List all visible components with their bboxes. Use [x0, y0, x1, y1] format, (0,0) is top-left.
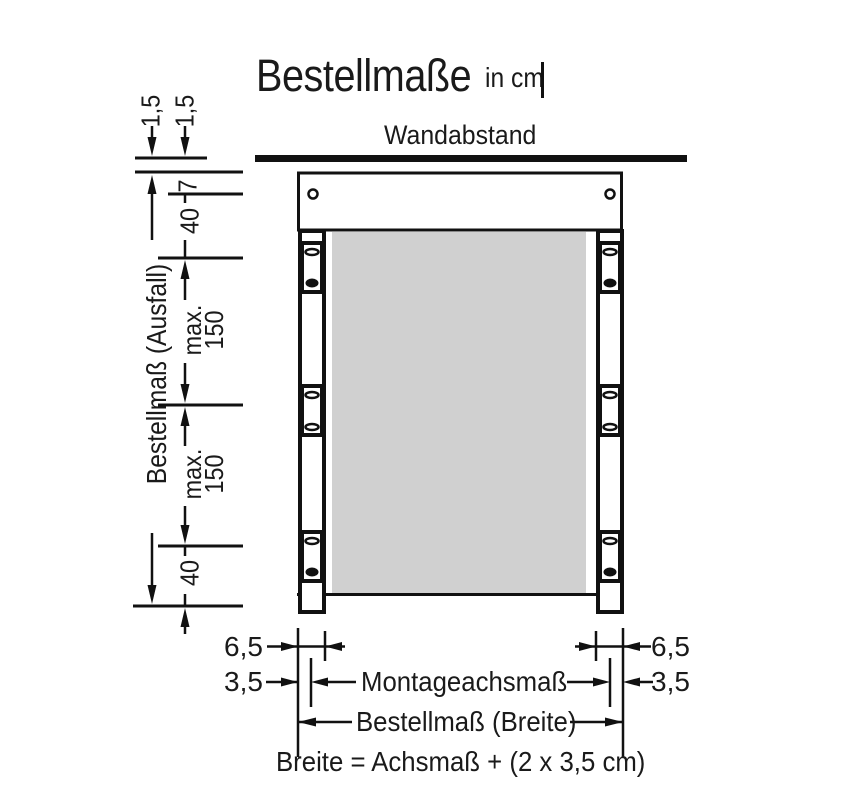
- screw-hole-right-icon: [606, 190, 615, 199]
- dim-1-5-left: 1,5: [136, 95, 167, 128]
- screw-icon: [306, 568, 319, 577]
- dim-6-5-left: 6,5: [224, 631, 263, 663]
- dim-max-150-upper: max. 150: [181, 305, 225, 356]
- dim-3-5-right: 3,5: [651, 666, 690, 698]
- dim-7: 7: [173, 179, 204, 192]
- slot-icon: [306, 538, 319, 544]
- drop-dimension-label: Bestellmaß (Ausfall): [141, 264, 173, 484]
- slot-icon: [604, 392, 617, 398]
- right-rail: [598, 231, 622, 612]
- wall-distance-label: Wandabstand: [384, 120, 536, 151]
- width-formula: Breite = Achsmaß + (2 x 3,5 cm): [276, 746, 645, 778]
- fabric-panel: [297, 232, 624, 595]
- dim-40-bottom: 40: [175, 560, 206, 586]
- dim-max-150-upper-line2: 150: [203, 305, 225, 356]
- left-rail: [300, 231, 324, 612]
- dim-max-150-lower-line2: 150: [203, 449, 225, 500]
- slot-icon: [306, 392, 319, 398]
- page-title: Bestellmaße: [256, 50, 471, 102]
- screw-icon: [604, 568, 617, 577]
- screw-icon: [306, 279, 319, 288]
- inner-dimension-chain: [181, 126, 190, 634]
- slot-icon: [604, 424, 617, 430]
- width-dimension-label: Bestellmaß (Breite): [356, 706, 576, 738]
- dim-40-top: 40: [175, 208, 206, 234]
- dim-3-5-left: 3,5: [224, 666, 263, 698]
- order-dimensions-diagram: Bestellmaße in cm Wandabstand 1,5 1,5 7 …: [0, 0, 860, 803]
- text-cursor: [541, 62, 544, 98]
- title-unit: in cm: [485, 62, 544, 94]
- mounting-axis-label: Montageachsmaß: [361, 666, 567, 698]
- slot-icon: [604, 249, 617, 255]
- dim-1-5-right: 1,5: [170, 95, 201, 128]
- dim-6-5-right: 6,5: [651, 631, 690, 663]
- slot-icon: [306, 424, 319, 430]
- screw-hole-left-icon: [309, 190, 318, 199]
- header-box: [299, 173, 622, 230]
- slot-icon: [604, 538, 617, 544]
- slot-icon: [306, 249, 319, 255]
- dim-max-150-lower: max. 150: [181, 449, 225, 500]
- screw-icon: [604, 279, 617, 288]
